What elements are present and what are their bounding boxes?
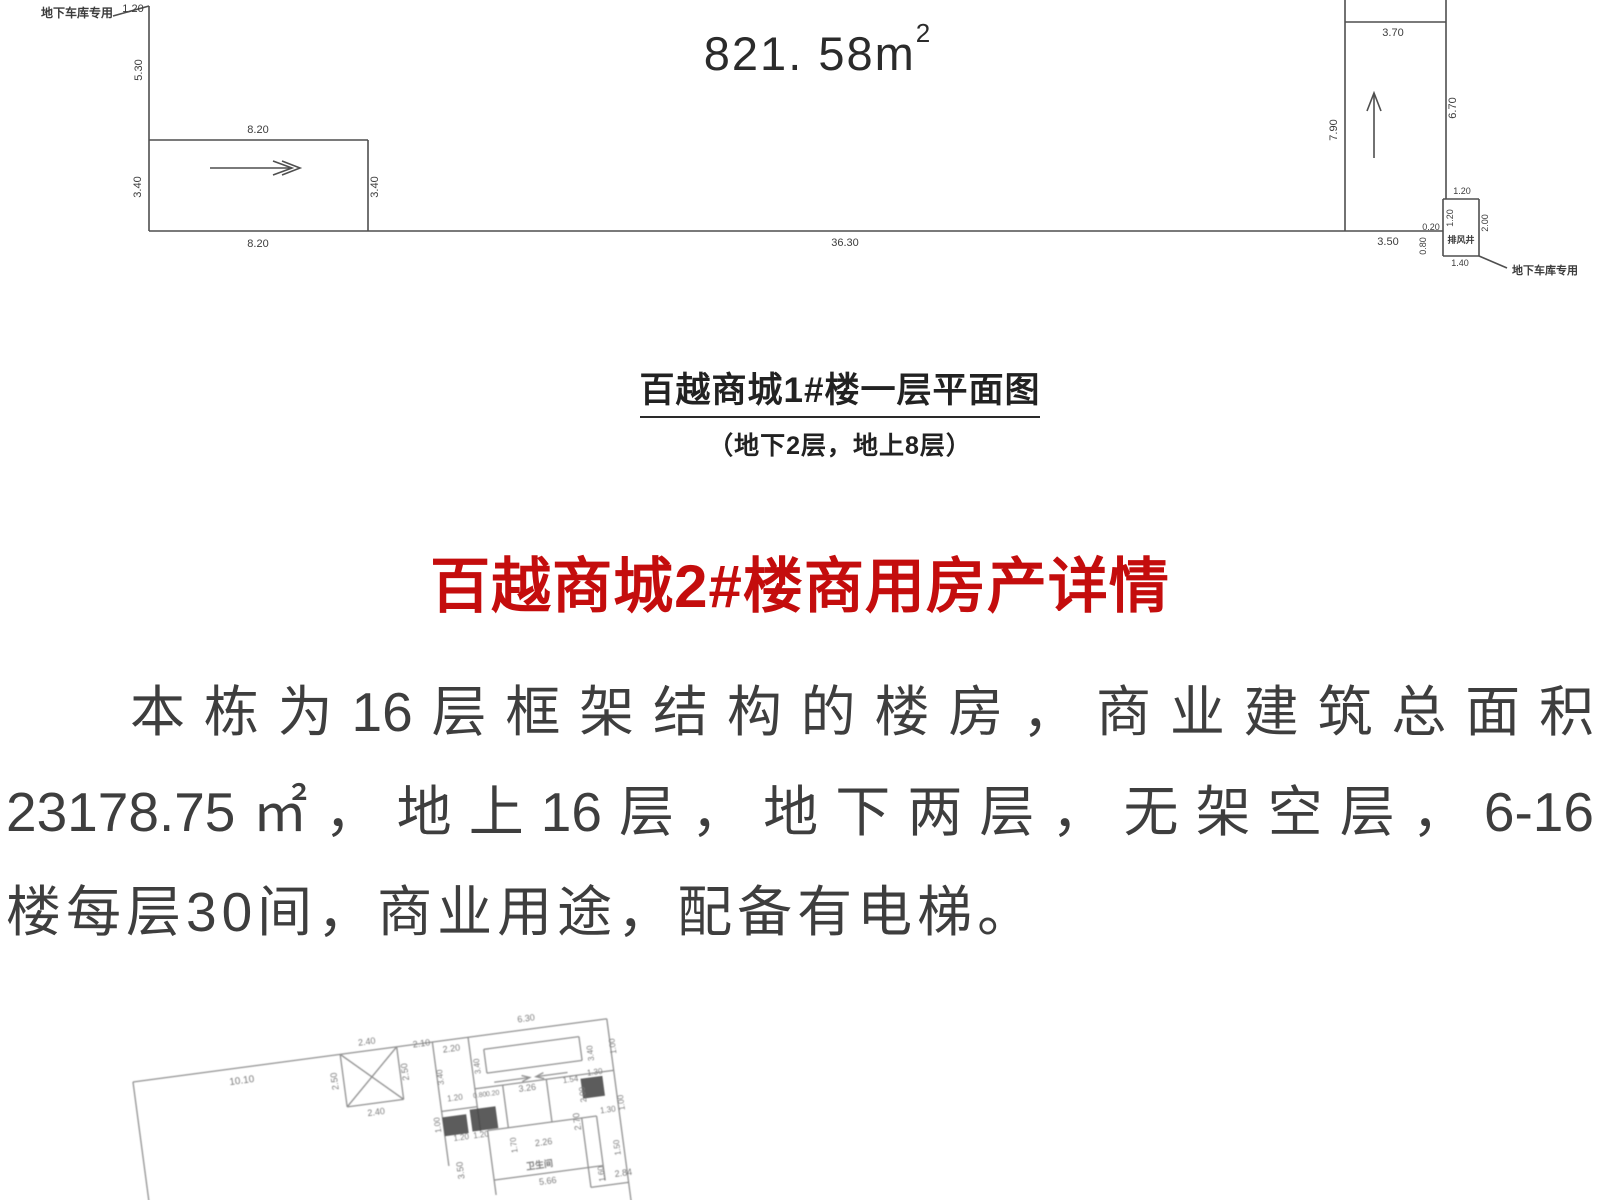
- svg-text:3.50: 3.50: [454, 1161, 466, 1180]
- svg-text:5.66: 5.66: [538, 1175, 557, 1187]
- svg-text:1.70: 1.70: [509, 1136, 520, 1153]
- svg-text:3.26: 3.26: [518, 1082, 537, 1094]
- svg-text:1.20: 1.20: [1453, 186, 1471, 196]
- svg-text:1.54: 1.54: [562, 1074, 579, 1085]
- svg-text:0.80: 0.80: [1418, 237, 1428, 255]
- description-line-3: 楼每层30间，商业用途，配备有电梯。: [6, 862, 1594, 962]
- svg-text:6.70: 6.70: [1447, 97, 1459, 118]
- svg-text:1.50: 1.50: [612, 1139, 623, 1156]
- svg-text:2.50: 2.50: [399, 1063, 411, 1082]
- svg-text:1.20: 1.20: [447, 1092, 464, 1103]
- plan1-caption-subtitle: （地下2层，地上8层）: [640, 426, 1041, 462]
- svg-text:6.30: 6.30: [517, 1012, 536, 1024]
- svg-text:地下车库专用: 地下车库专用: [41, 5, 113, 20]
- svg-text:3.50: 3.50: [1377, 236, 1398, 248]
- svg-text:1.60: 1.60: [596, 1165, 607, 1182]
- svg-text:36.30: 36.30: [831, 237, 859, 249]
- document-page: 地下车库专用1.205.308.203.403.408.2036.303.507…: [0, 0, 1600, 1200]
- plan1-caption-inner: 百越商城1#楼一层平面图 （地下2层，地上8层）: [640, 362, 1041, 462]
- svg-text:7.90: 7.90: [1328, 119, 1340, 140]
- svg-text:2.26: 2.26: [534, 1136, 553, 1148]
- svg-text:3.70: 3.70: [1382, 27, 1403, 39]
- svg-text:1.20: 1.20: [122, 3, 143, 15]
- section-heading: 百越商城2#楼商用房产详情: [0, 538, 1600, 625]
- svg-text:2.20: 2.20: [442, 1042, 461, 1054]
- svg-text:8.20: 8.20: [247, 238, 268, 250]
- svg-text:2.70: 2.70: [571, 1112, 583, 1131]
- svg-text:1.20: 1.20: [453, 1132, 470, 1143]
- svg-text:3.40: 3.40: [435, 1068, 446, 1085]
- svg-text:1.40: 1.40: [1451, 258, 1469, 268]
- plan1-area-superscript: 2: [916, 18, 932, 48]
- svg-text:1.00: 1.00: [616, 1094, 627, 1111]
- svg-text:1.20: 1.20: [473, 1129, 490, 1140]
- svg-text:5.30: 5.30: [133, 59, 145, 80]
- svg-text:8.20: 8.20: [247, 124, 268, 136]
- svg-text:2.40: 2.40: [357, 1036, 376, 1048]
- svg-text:10.10: 10.10: [229, 1074, 256, 1088]
- plan1-area-value: 821. 58m: [704, 27, 916, 80]
- svg-text:2.40: 2.40: [367, 1106, 386, 1118]
- svg-text:2.10: 2.10: [412, 1037, 431, 1049]
- svg-text:1.00: 1.00: [432, 1116, 443, 1133]
- svg-text:2.00: 2.00: [1480, 214, 1490, 232]
- svg-text:卫生间: 卫生间: [525, 1157, 553, 1171]
- svg-text:3.40: 3.40: [132, 176, 144, 197]
- plan1-caption: 百越商城1#楼一层平面图 （地下2层，地上8层）: [0, 362, 1600, 462]
- plan1-caption-title: 百越商城1#楼一层平面图: [640, 362, 1041, 418]
- svg-text:3.40: 3.40: [585, 1044, 596, 1061]
- description-line-2: 23178.75㎡，地上16层，地下两层，无架空层，6-16: [6, 762, 1594, 862]
- plan1-area-label: 821. 58m2: [704, 18, 932, 81]
- svg-text:1.30: 1.30: [600, 1104, 617, 1115]
- svg-text:1.20: 1.20: [1445, 209, 1455, 227]
- svg-text:1.00: 1.00: [607, 1037, 618, 1054]
- svg-text:3.40: 3.40: [472, 1057, 483, 1074]
- description-line-1: 本栋为16层框架结构的楼房，商业建筑总面积: [6, 662, 1594, 762]
- svg-text:3.40: 3.40: [369, 176, 381, 197]
- property-description: 本栋为16层框架结构的楼房，商业建筑总面积 23178.75㎡，地上16层，地下…: [6, 662, 1594, 962]
- svg-text:2.84: 2.84: [614, 1167, 633, 1179]
- svg-text:排风井: 排风井: [1447, 234, 1474, 245]
- svg-text:0.20: 0.20: [1422, 222, 1440, 232]
- floor-plan-2-drawing: 10.102.402.502.502.102.406.302.203.403.4…: [131, 1002, 640, 1200]
- svg-text:2.50: 2.50: [329, 1072, 341, 1091]
- svg-text:地下车库专用: 地下车库专用: [1512, 263, 1578, 277]
- svg-text:0.20: 0.20: [486, 1090, 501, 1099]
